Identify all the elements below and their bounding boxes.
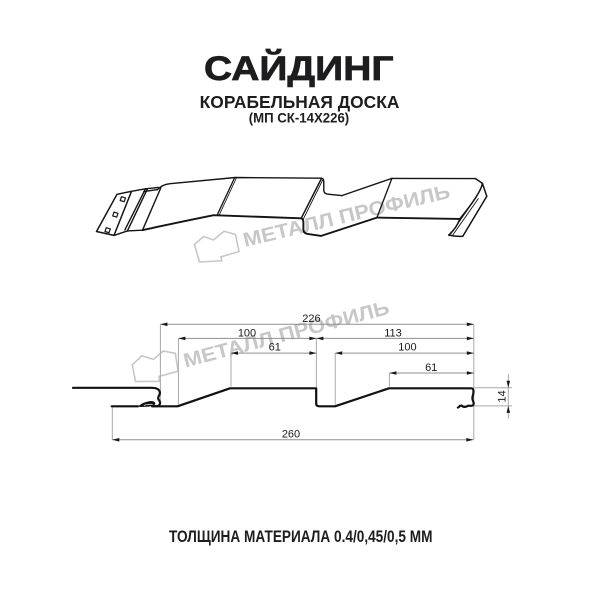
svg-text:61: 61 bbox=[425, 362, 437, 374]
svg-text:(МП СК-14Х226): (МП СК-14Х226) bbox=[249, 111, 350, 126]
svg-text:260: 260 bbox=[282, 429, 300, 441]
svg-text:ТОЛЩИНА МАТЕРИАЛА 0.4/0,45/0,5: ТОЛЩИНА МАТЕРИАЛА 0.4/0,45/0,5 ММ bbox=[169, 527, 433, 546]
svg-text:61: 61 bbox=[269, 342, 281, 354]
svg-text:14: 14 bbox=[497, 390, 509, 402]
svg-text:КОРАБЕЛЬНАЯ ДОСКА: КОРАБЕЛЬНАЯ ДОСКА bbox=[200, 92, 400, 112]
svg-text:113: 113 bbox=[384, 327, 402, 339]
svg-text:САЙДИНГ: САЙДИНГ bbox=[204, 49, 394, 88]
svg-text:226: 226 bbox=[302, 313, 320, 325]
svg-text:100: 100 bbox=[398, 342, 416, 354]
svg-text:100: 100 bbox=[238, 327, 256, 339]
